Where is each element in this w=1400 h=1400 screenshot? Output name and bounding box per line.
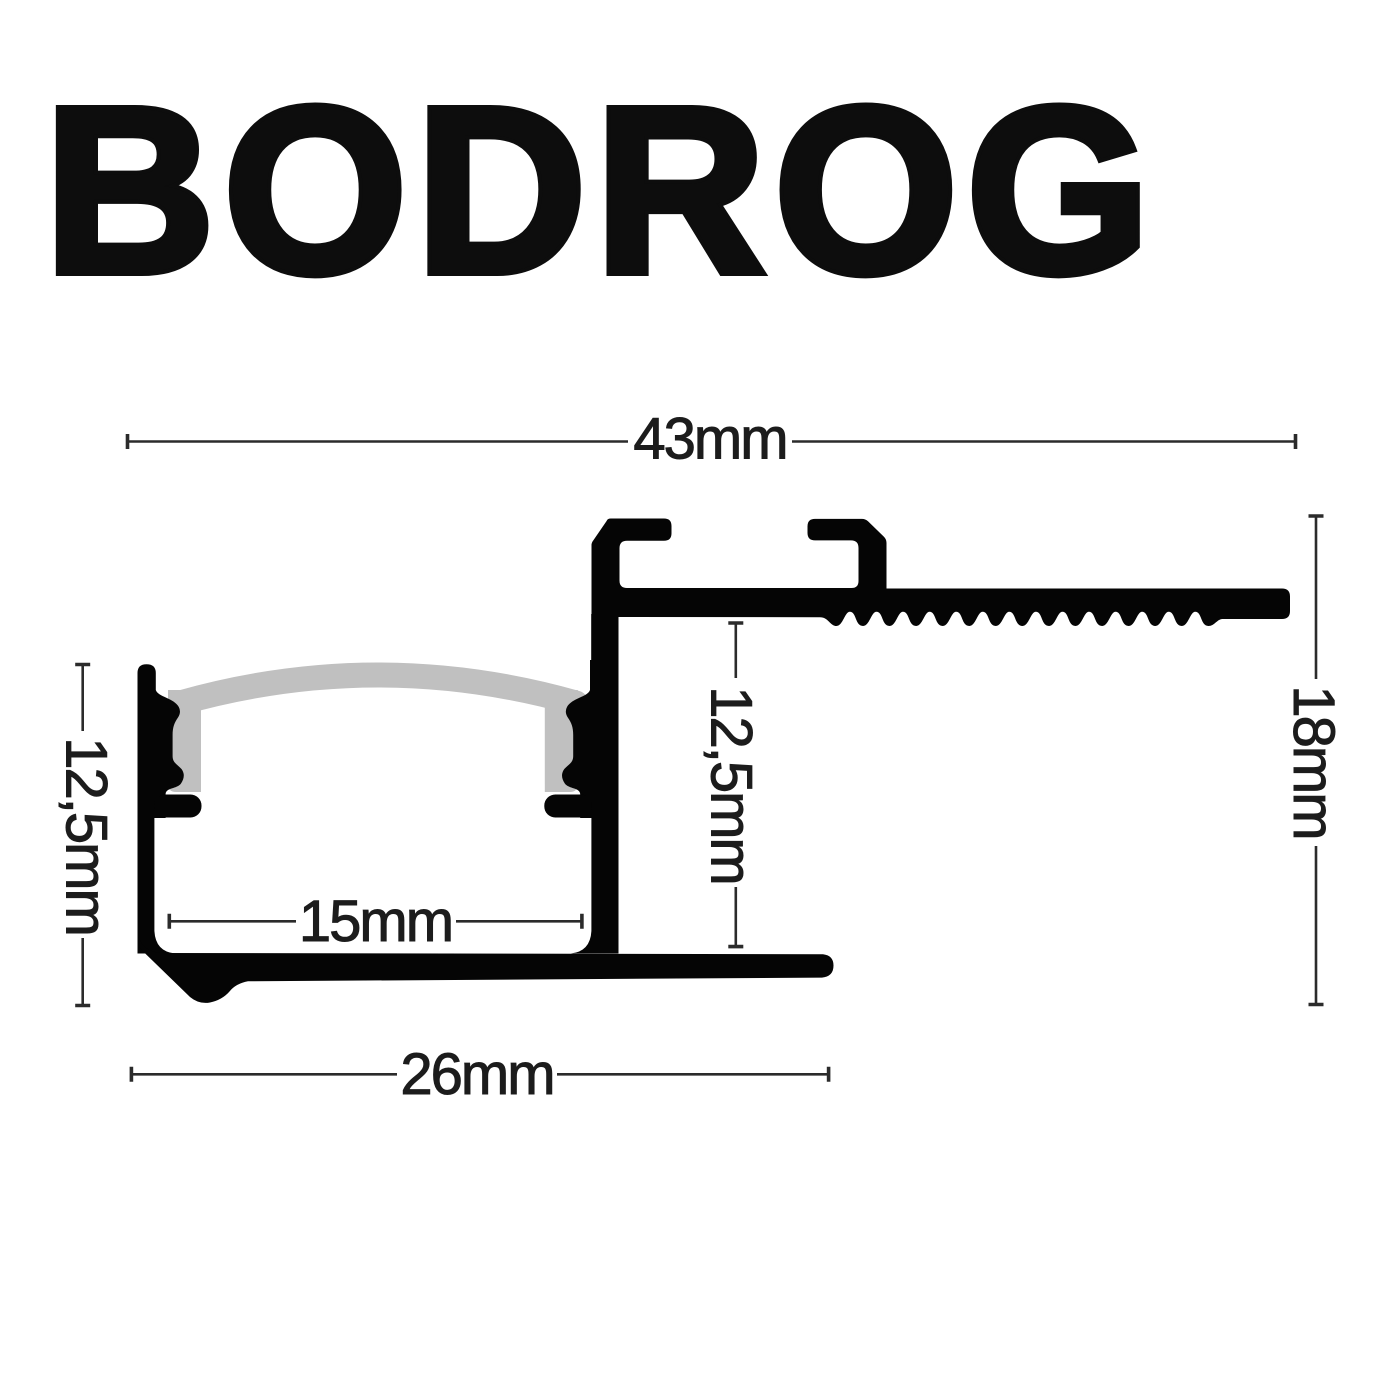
- svg-text:26mm: 26mm: [400, 1042, 553, 1107]
- svg-text:18mm: 18mm: [1281, 685, 1346, 838]
- svg-text:43mm: 43mm: [633, 407, 786, 472]
- svg-text:BODROG: BODROG: [44, 58, 1159, 323]
- svg-text:15mm: 15mm: [299, 889, 452, 954]
- svg-text:12,5mm: 12,5mm: [54, 737, 119, 935]
- svg-text:12,5mm: 12,5mm: [699, 686, 764, 884]
